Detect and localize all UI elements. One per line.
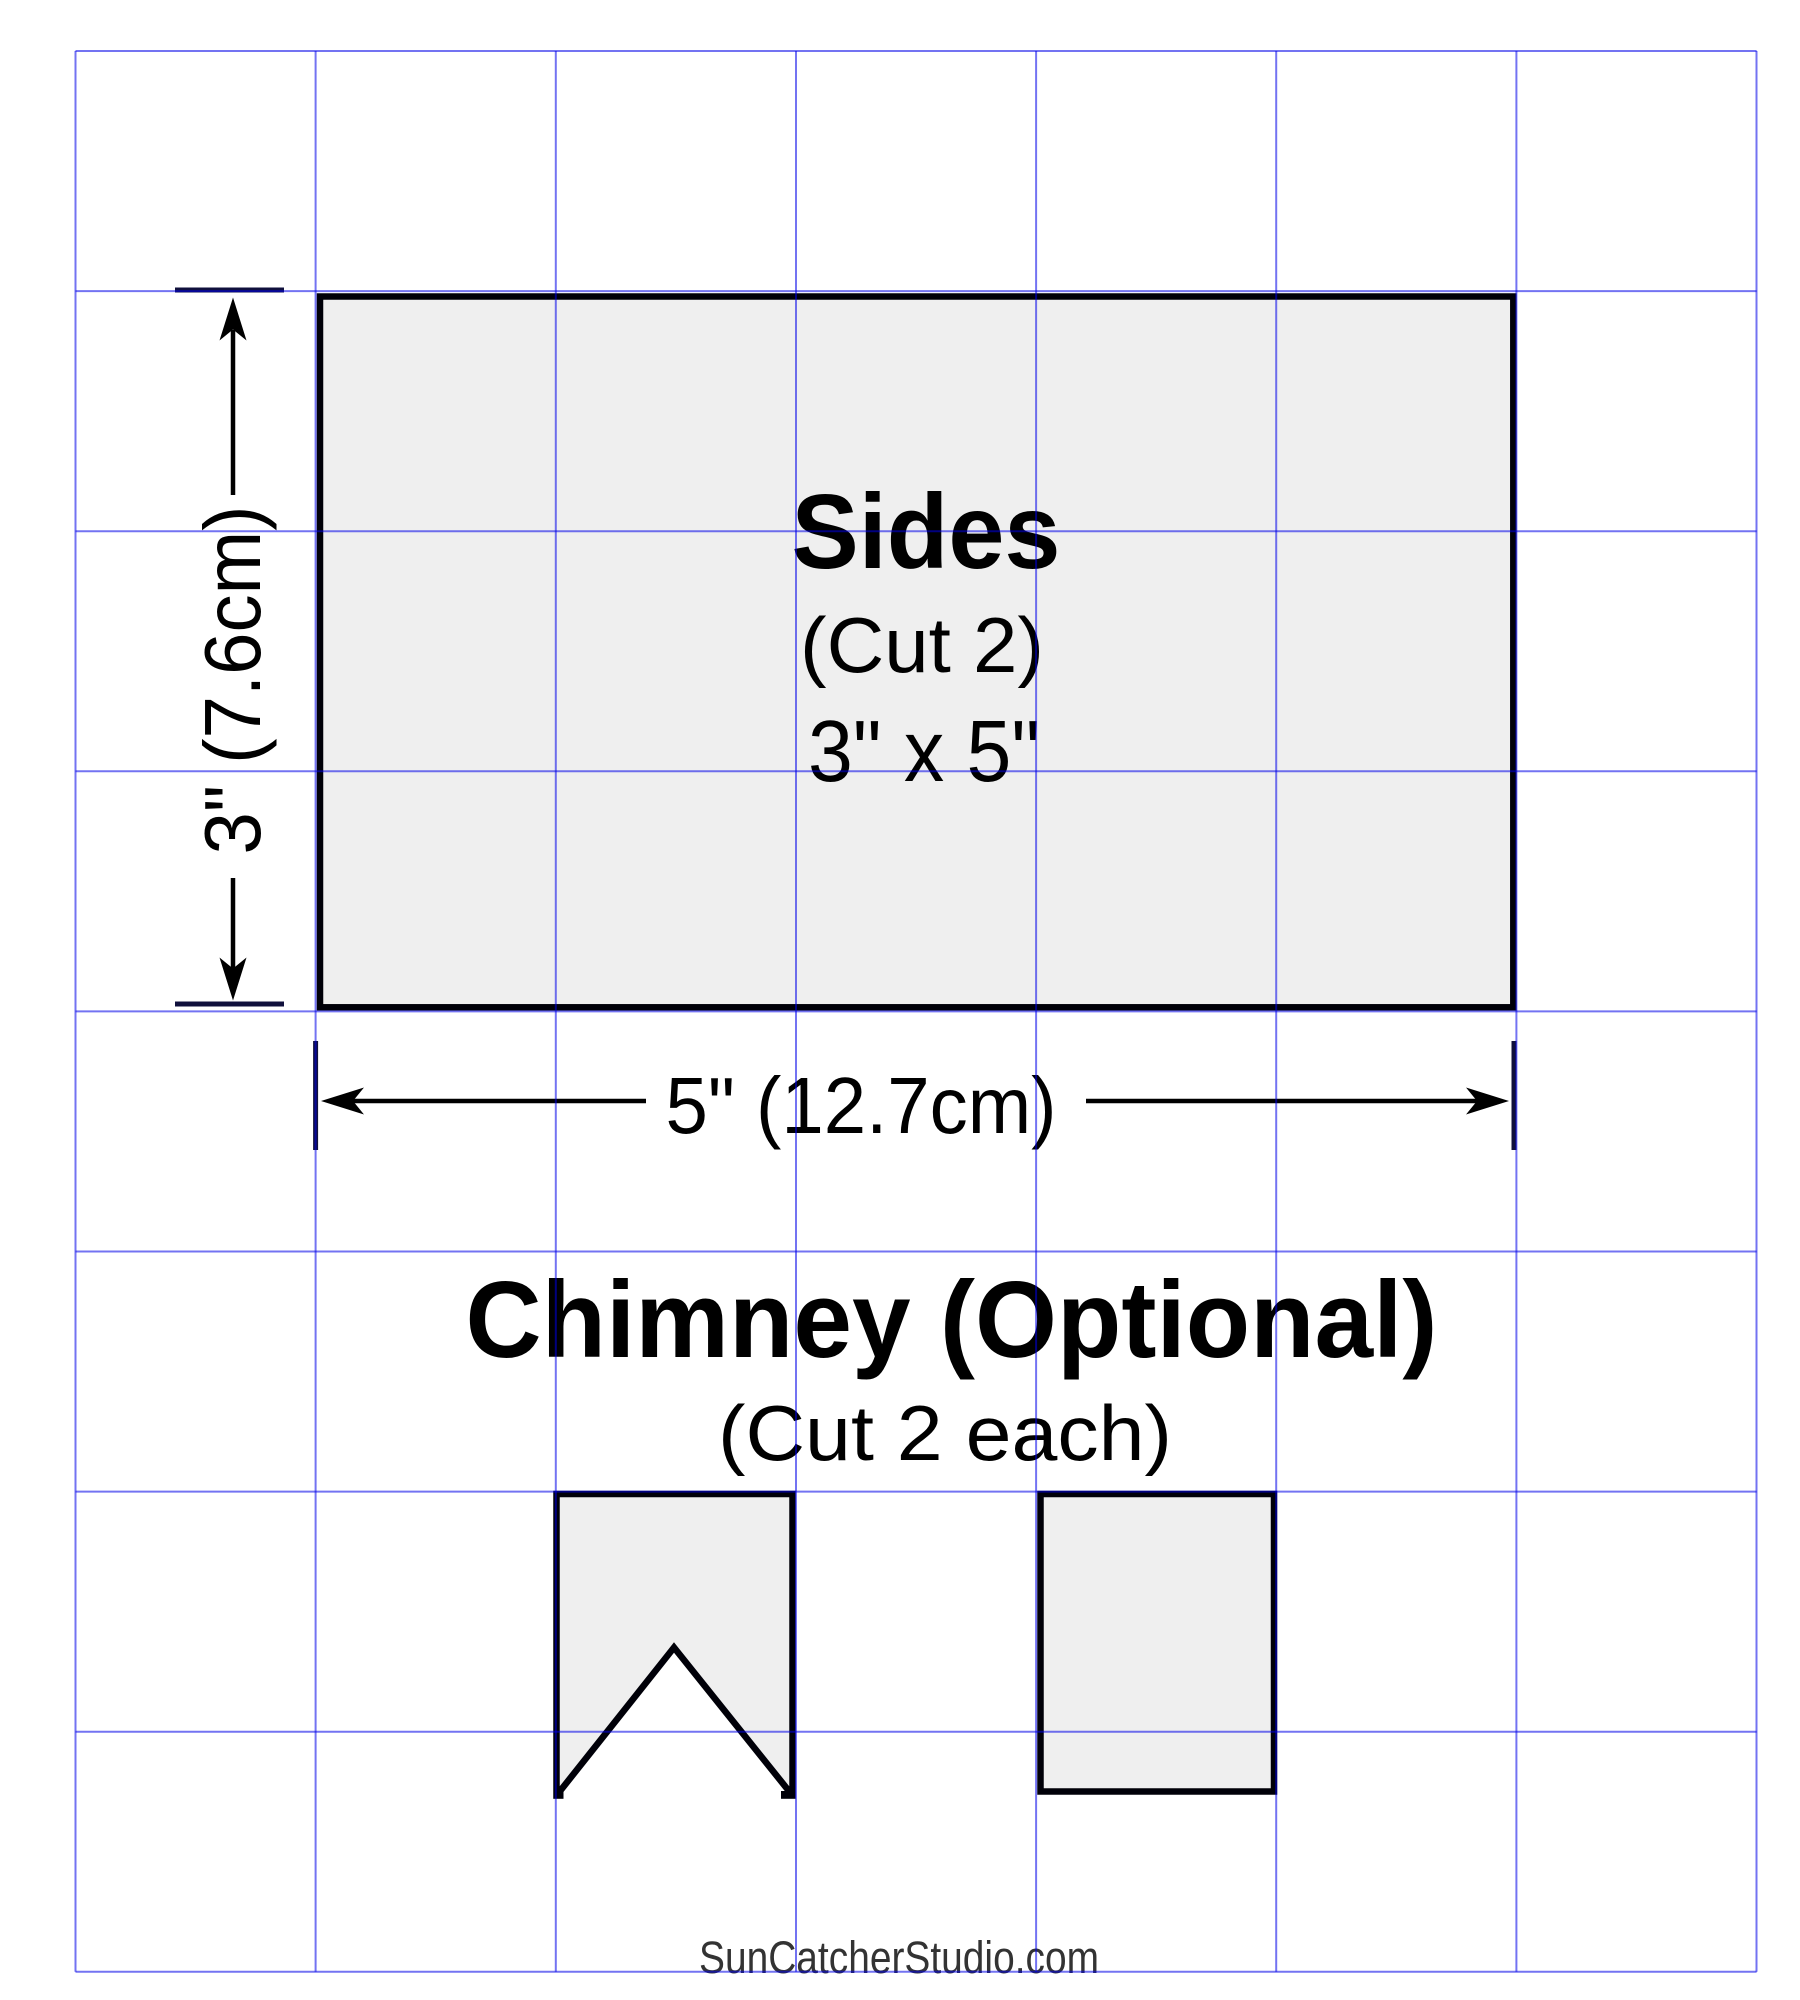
svg-text:(Cut 2): (Cut 2)	[800, 601, 1044, 689]
svg-text:Chimney (Optional): Chimney (Optional)	[466, 1259, 1438, 1381]
svg-text:3" x 5": 3" x 5"	[808, 703, 1040, 800]
svg-text:SunCatcherStudio.com: SunCatcherStudio.com	[699, 1932, 1099, 1983]
svg-text:5" (12.7cm): 5" (12.7cm)	[666, 1061, 1057, 1150]
svg-text:3" (7.6cm): 3" (7.6cm)	[188, 506, 277, 855]
svg-text:(Cut 2 each): (Cut 2 each)	[718, 1389, 1172, 1477]
